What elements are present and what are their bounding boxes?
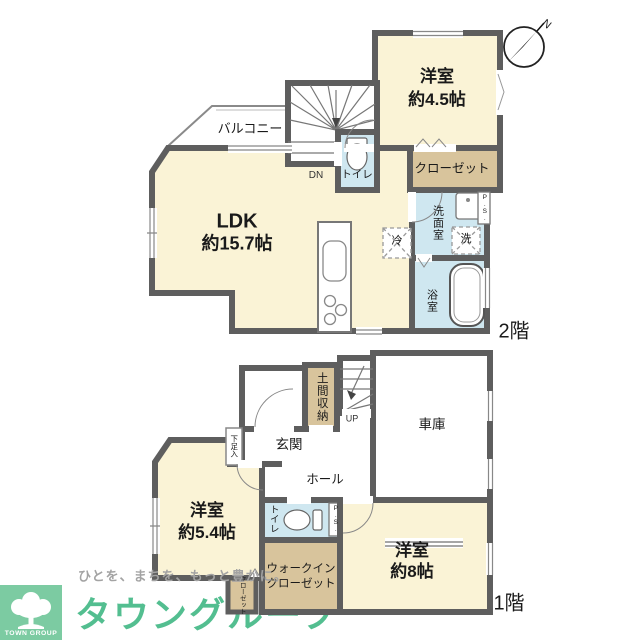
second-floor-label: 2階 <box>498 322 529 343</box>
western-room-8-name-label: 洋室 <box>395 542 429 560</box>
washer-label: 洗 <box>461 234 472 246</box>
western-room-45-name-label: 洋室 <box>420 68 454 86</box>
pipe-space-1f-label: P.S. <box>332 505 339 533</box>
pipe-space-2f-label: P.S. <box>481 194 488 222</box>
western-room-54-name-label: 洋室 <box>190 502 224 520</box>
washroom-label: 洗面室 <box>432 205 443 241</box>
first-floor-label: 1階 <box>493 594 524 615</box>
shoe-cabinet-label: 下足入 <box>230 435 238 458</box>
hall-label: ホール <box>306 473 344 486</box>
labels: バルコニー LDK 約15.7帖 洋室 約4.5帖 クローゼット トイレ 洗面室… <box>0 0 640 640</box>
brand-tagline: ひとを、まちを、もっと豊かに。 <box>78 566 288 585</box>
western-room-54-size-label: 約5.4帖 <box>178 524 236 542</box>
fridge-label: 冷 <box>392 236 403 248</box>
toilet-2f-label: トイレ <box>341 169 373 180</box>
western-room-8-size-label: 約8帖 <box>390 563 433 581</box>
entrance-label: 玄関 <box>276 438 303 452</box>
stairs-up-label: UP <box>346 414 359 423</box>
bathroom-label: 浴室 <box>426 289 437 313</box>
garage-label: 車庫 <box>419 418 446 432</box>
ldk-name-label: LDK <box>216 212 257 233</box>
floorplan-page: タウングループ <box>0 0 640 640</box>
western-room-45-size-label: 約4.5帖 <box>408 91 466 109</box>
toilet-1f-label: トイレ <box>268 505 278 534</box>
compass-north-label: N <box>539 18 553 32</box>
balcony-label: バルコニー <box>218 122 283 136</box>
closet-2f-label: クローゼット <box>414 162 489 175</box>
stairs-dn-label: DN <box>309 171 323 182</box>
ldk-size-label: 約15.7帖 <box>201 235 272 254</box>
logo-text: TOWN GROUP <box>5 630 57 637</box>
doma-storage-label: 土間収納 <box>315 372 327 422</box>
town-group-logo: TOWN GROUP <box>0 585 62 640</box>
